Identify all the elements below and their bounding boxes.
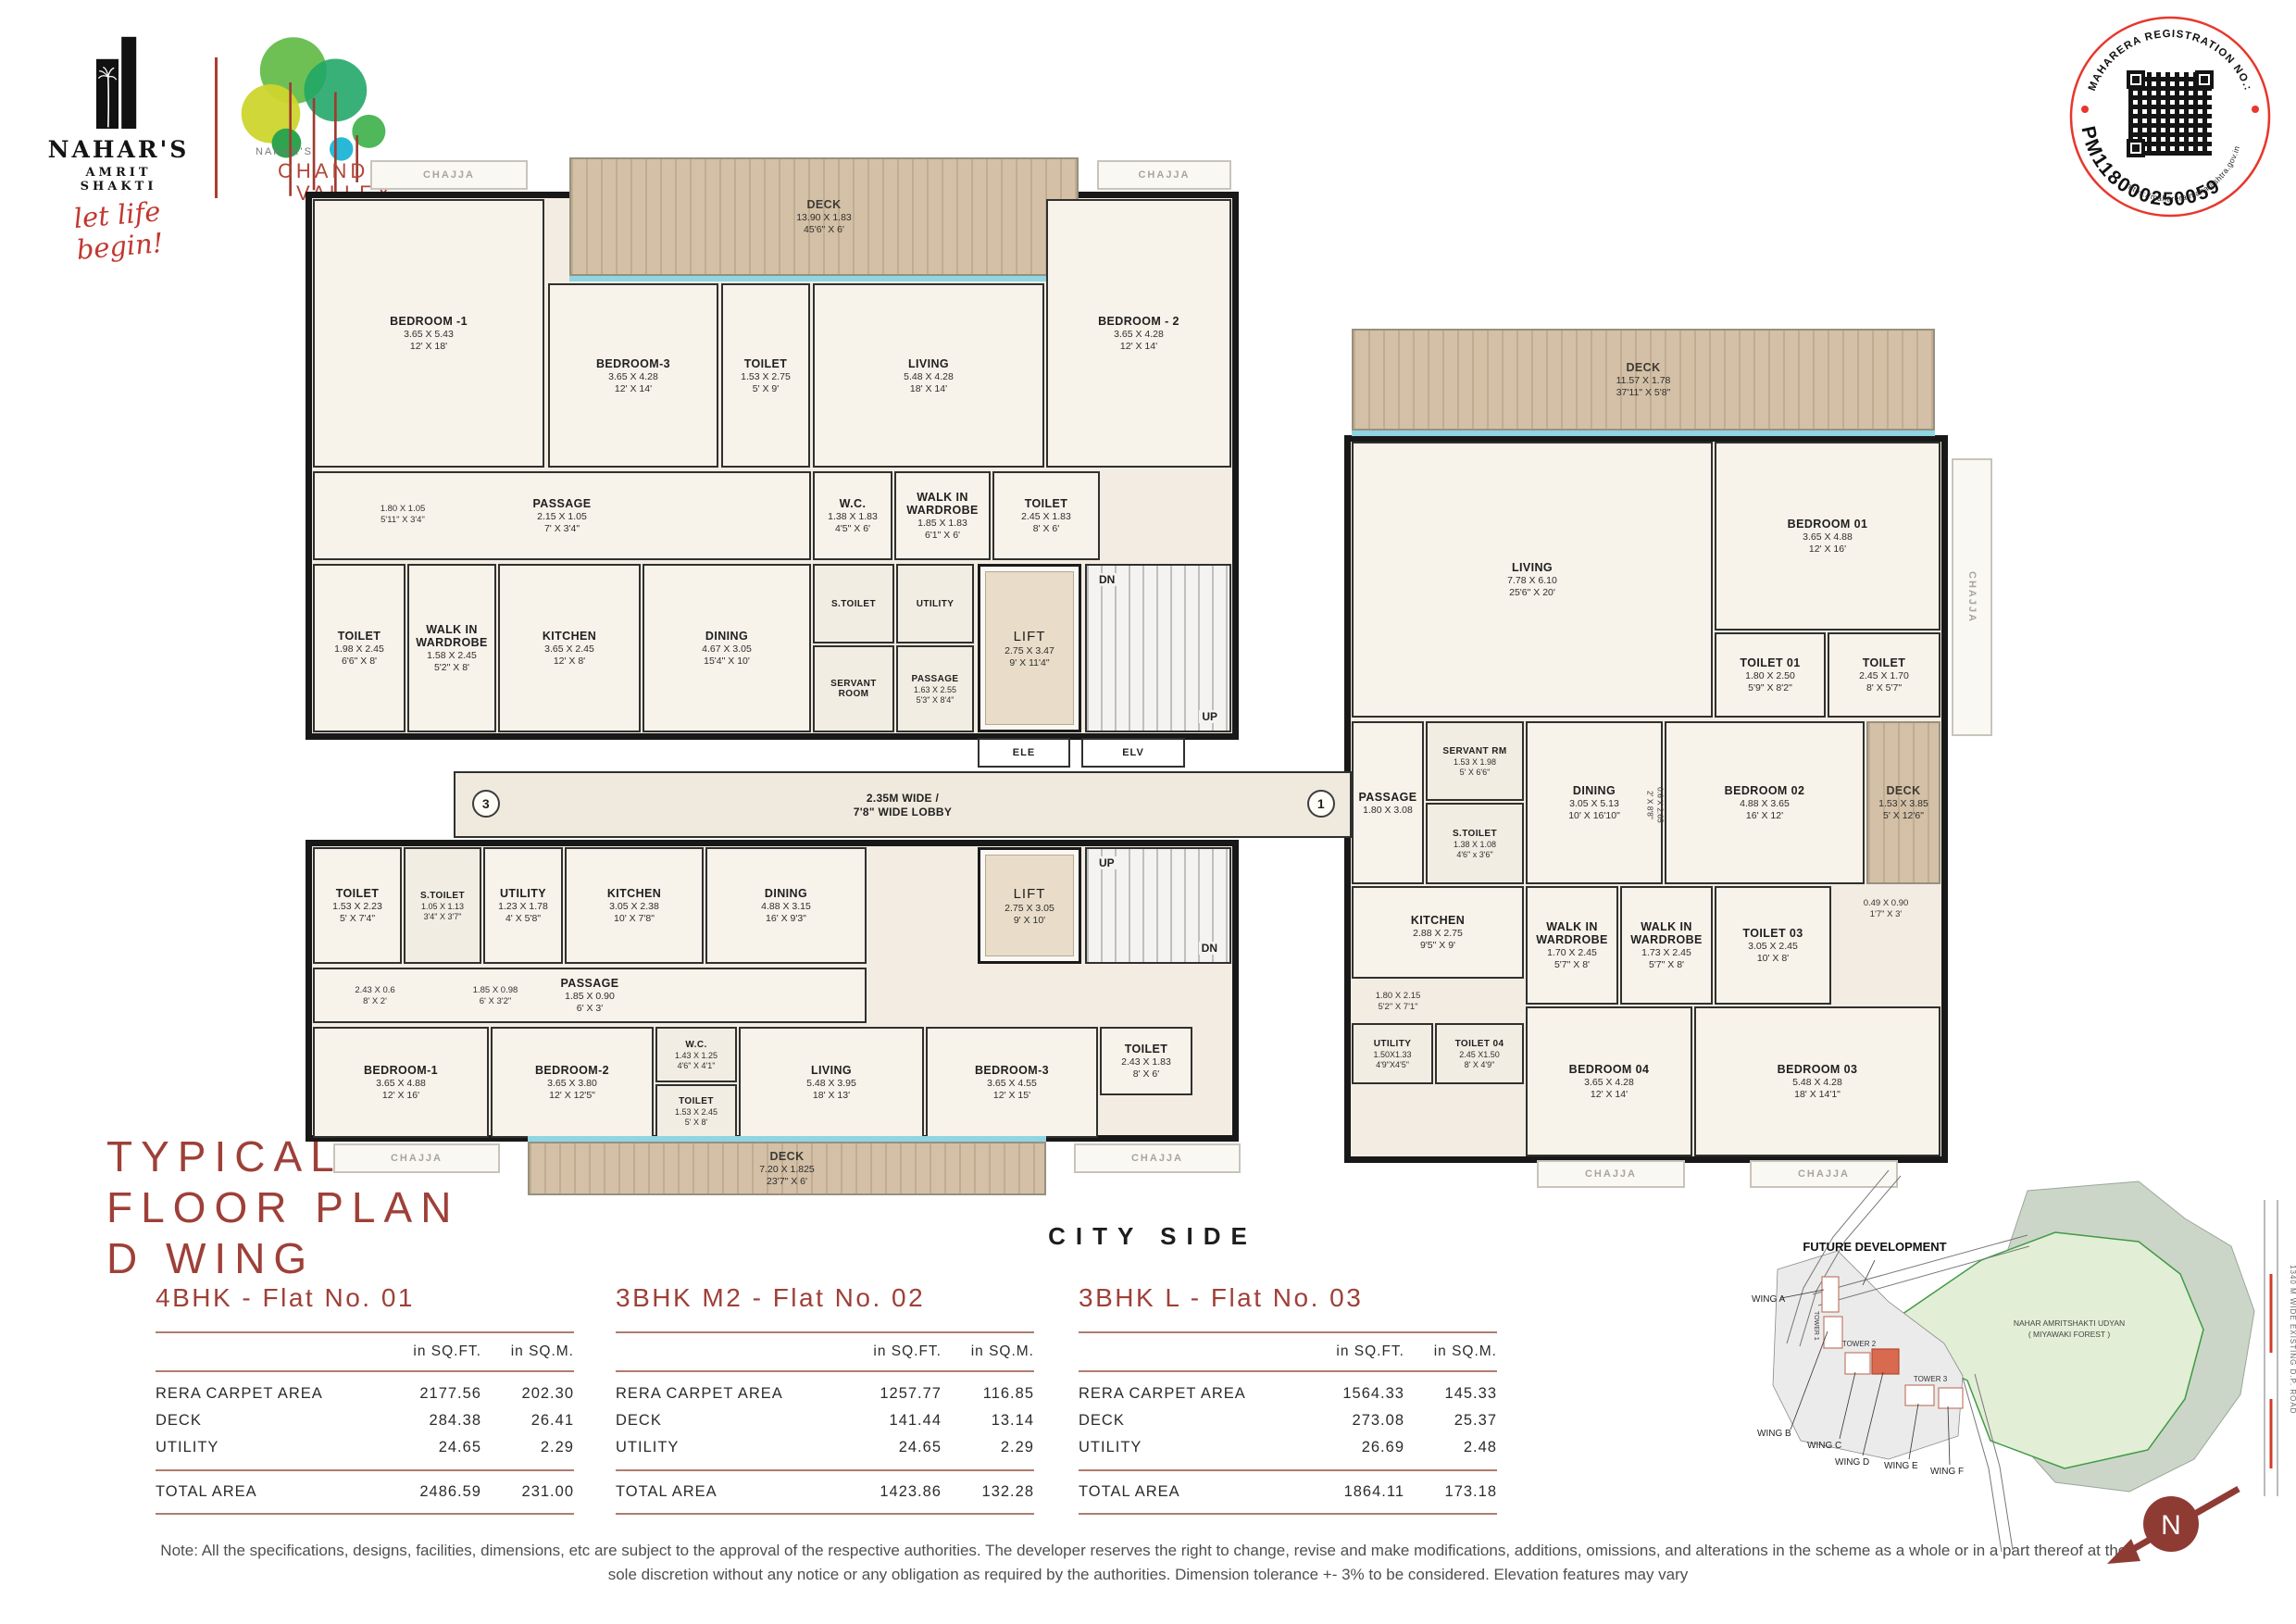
col-sqm: in SQ.M. <box>1404 1343 1497 1360</box>
room-dimension: 12' X 12'5" <box>549 1090 595 1101</box>
room-name: KITCHEN <box>543 630 596 643</box>
row-label: DECK <box>616 1412 832 1430</box>
room-dimension: 2.75 X 3.05 <box>1004 903 1054 914</box>
col-sqm: in SQ.M. <box>942 1343 1034 1360</box>
room-dimension: 8' X 4'9" <box>1465 1060 1495 1069</box>
row-value: 1257.77 <box>832 1385 942 1403</box>
room-name: BEDROOM-2 <box>535 1064 609 1077</box>
flat3-bedroom-01: BEDROOM 013.65 X 4.8812' X 16' <box>1715 442 1940 631</box>
area-table-flat-02: 3BHK M2 - Flat No. 02 in SQ.FT. in SQ.M.… <box>616 1283 1034 1515</box>
title-line-1: TYPICAL <box>106 1131 459 1182</box>
flat3-s-toilet: S.TOILET1.38 X 1.084'6" x 3'6" <box>1426 803 1524 884</box>
room-dimension: 10' X 7'8" <box>614 913 655 924</box>
flat2-s-toilet: S.TOILET1.05 X 1.133'4" X 3'7" <box>404 847 481 964</box>
room-dimension: 9'5" X 9' <box>1420 940 1455 951</box>
room-dimension: 12' X 14' <box>1591 1089 1628 1100</box>
room-dimension: 7.20 X 1.825 <box>759 1164 815 1175</box>
room-dimension: 2.15 X 1.05 <box>537 511 587 522</box>
table-header: in SQ.FT. in SQ.M. <box>156 1331 574 1372</box>
table-row: UTILITY26.692.48 <box>1079 1434 1497 1461</box>
room-dimension: 3.05 X 5.13 <box>1569 798 1619 809</box>
room-name: SERVANT ROOM <box>815 679 892 699</box>
room-dimension: 7'8" WIDE LOBBY <box>854 806 952 818</box>
row-value: 132.28 <box>942 1483 1034 1501</box>
room-name: S.TOILET <box>1453 829 1497 839</box>
room-dimension: 1.58 X 2.45 <box>427 650 477 661</box>
room-dimension: 5'2" X 7'1" <box>1378 1002 1417 1012</box>
row-label: TOTAL AREA <box>156 1483 372 1501</box>
room-dimension: 5.48 X 4.28 <box>1792 1077 1842 1088</box>
row-value: 231.00 <box>481 1483 574 1501</box>
room-name: LIVING <box>811 1064 852 1077</box>
room-dimension: 6' X 3' <box>577 1003 604 1014</box>
room-dimension: 1.53 X 2.23 <box>332 901 382 912</box>
room-dimension: 5'9" X 8'2" <box>1748 682 1792 693</box>
room-name: TOILET <box>1125 1043 1168 1056</box>
room-dimension: 18' X 14'1" <box>1794 1089 1841 1100</box>
entry-number-1: 1 <box>1307 790 1335 818</box>
room-name: PASSAGE <box>561 977 619 990</box>
room-name: BEDROOM - 2 <box>1098 315 1179 328</box>
room-name: BEDROOM 03 <box>1778 1063 1858 1076</box>
room-dimension: 3.65 X 4.28 <box>1114 329 1164 340</box>
room-dimension: 2.45 X 1.70 <box>1859 670 1909 681</box>
room-dimension: 18' X 14' <box>910 383 947 394</box>
room-dimension: 2.75 X 3.47 <box>1004 645 1054 656</box>
room-name: PASSAGE <box>912 674 959 684</box>
flat3-deck-top: DECK11.57 X 1.7837'11" X 5'8" <box>1352 329 1935 431</box>
wing-c-label: WING C <box>1807 1441 1841 1451</box>
flat3-living: LIVING7.78 X 6.1025'6" X 20' <box>1352 442 1713 718</box>
room-dimension: 5'11" X 3'4" <box>381 515 425 525</box>
room-dimension: 13.90 X 1.83 <box>796 212 852 223</box>
chajja-bottom-right-a: CHAJJA <box>1537 1160 1685 1188</box>
row-value: 26.41 <box>481 1412 574 1430</box>
room-dimension: 12' X 8' <box>554 656 585 667</box>
row-value: 26.69 <box>1295 1439 1404 1456</box>
room-name: TOILET <box>744 357 788 370</box>
room-name: BEDROOM-1 <box>364 1064 438 1077</box>
flat3-servant-room: SERVANT RM1.53 X 1.985' X 6'6" <box>1426 721 1524 801</box>
room-dimension: 3.65 X 4.88 <box>376 1078 426 1089</box>
room-name: W.C. <box>685 1040 706 1050</box>
page-title: TYPICAL FLOOR PLAN D WING <box>106 1131 459 1285</box>
room-dimension: 16' X 9'3" <box>766 913 806 924</box>
room-dimension: 23'7" X 6' <box>767 1176 807 1187</box>
room-name: CHAJJA <box>1585 1168 1637 1180</box>
room-dimension: 2' X 8'8" <box>1646 791 1655 819</box>
flat2-kitchen: KITCHEN3.05 X 2.3810' X 7'8" <box>565 847 704 964</box>
room-dimension: 1.23 X 1.78 <box>498 901 548 912</box>
row-label: UTILITY <box>616 1439 832 1456</box>
table-row: UTILITY24.652.29 <box>616 1434 1034 1461</box>
chajja-bottom-mid: CHAJJA <box>1074 1143 1241 1173</box>
row-value: 2.48 <box>1404 1439 1497 1456</box>
tower-1-label: TOWER 1 <box>1813 1311 1819 1341</box>
room-name: CHAJJA <box>1131 1153 1183 1164</box>
room-name: DINING <box>705 630 748 643</box>
room-dimension: 4.88 X 3.15 <box>761 901 811 912</box>
col-sqft: in SQ.FT. <box>832 1343 942 1360</box>
flat1-toilet-b: TOILET2.45 X 1.838' X 6' <box>992 471 1100 560</box>
room-dimension: 3.65 X 4.88 <box>1803 531 1853 543</box>
room-dimension: 2.45 X 1.83 <box>1021 511 1071 522</box>
flat1-wardrobe-b: WALK IN WARDROBE1.58 X 2.455'2" X 8' <box>407 564 496 732</box>
amrit-shakti-name: NAHAR'S <box>44 136 193 163</box>
flat2-bedroom-1: BEDROOM-13.65 X 4.8812' X 16' <box>313 1027 489 1138</box>
compass-n: N <box>2161 1510 2181 1541</box>
flat3-wardrobe-dim: 0.6 X 2.652' X 8'8" <box>1646 740 1665 869</box>
future-development-label: FUTURE DEVELOPMENT <box>1803 1240 1946 1254</box>
staircase-2: UPDN <box>1085 847 1231 964</box>
total-row: TOTAL AREA1864.11173.18 <box>1079 1471 1497 1515</box>
row-label: DECK <box>1079 1412 1295 1430</box>
qr-finder-icon <box>2127 70 2145 89</box>
room-dimension: 1.98 X 2.45 <box>334 643 384 655</box>
room-name: WALK IN WARDROBE <box>896 491 989 517</box>
row-value: 2177.56 <box>372 1385 481 1403</box>
room-dimension: 15'4" X 10' <box>704 656 750 667</box>
room-dimension: 1.53 X 1.98 <box>1454 757 1496 767</box>
col-sqft: in SQ.FT. <box>1295 1343 1404 1360</box>
room-dimension: 6'1" X 6' <box>925 530 960 541</box>
area-table-flat-03: 3BHK L - Flat No. 03 in SQ.FT. in SQ.M. … <box>1079 1283 1497 1515</box>
chajja-right-vertical: CHAJJA <box>1952 458 1992 736</box>
forest-name-2: ( MIYAWAKI FOREST ) <box>2028 1330 2110 1339</box>
wing-d-highlight <box>1872 1349 1899 1374</box>
room-dimension: 5' X 6'6" <box>1460 768 1491 777</box>
room-name: LIFT <box>1014 886 1046 902</box>
wing-a-label: WING A <box>1752 1294 1785 1305</box>
title-line-3: D WING <box>106 1233 459 1284</box>
row-label: UTILITY <box>1079 1439 1295 1456</box>
room-dimension: 5.48 X 4.28 <box>904 371 954 382</box>
room-dimension: 5' X 7'4" <box>340 913 375 924</box>
room-dimension: 4'5" X 6' <box>835 523 870 534</box>
room-name: LIVING <box>908 357 949 370</box>
room-dimension: 8' X 5'7" <box>1866 682 1902 693</box>
room-dimension: 3.05 X 2.45 <box>1748 941 1798 952</box>
room-dimension: 8' X 2' <box>363 996 387 1006</box>
flat3-kitchen-dim: 1.80 X 2.155'2" X 7'1" <box>1352 981 1444 1021</box>
flat-heading: 4BHK - Flat No. 01 <box>156 1283 574 1313</box>
flat3-bedroom-04: BEDROOM 043.65 X 4.2812' X 14' <box>1526 1006 1692 1156</box>
row-value: 2.29 <box>481 1439 574 1456</box>
room-name: CHAJJA <box>1138 169 1190 181</box>
tower-2-label: TOWER 2 <box>1842 1340 1877 1348</box>
row-label: RERA CARPET AREA <box>1079 1385 1295 1403</box>
table-row: DECK273.0825.37 <box>1079 1407 1497 1434</box>
window-strip-flat3 <box>1352 431 1935 436</box>
room-dimension: 12' X 14' <box>615 383 652 394</box>
row-value: 25.37 <box>1404 1412 1497 1430</box>
room-name: PASSAGE <box>533 497 592 510</box>
room-dimension: 4.67 X 3.05 <box>702 643 752 655</box>
flat1-kitchen: KITCHEN3.65 X 2.4512' X 8' <box>498 564 641 732</box>
room-name: CHAJJA <box>423 169 475 181</box>
col-sqm: in SQ.M. <box>481 1343 574 1360</box>
room-dimension: 1.85 X 0.90 <box>565 991 615 1002</box>
room-dimension: 5'7" X 8' <box>1649 959 1684 970</box>
total-row: TOTAL AREA1423.86132.28 <box>616 1471 1034 1515</box>
row-value: 141.44 <box>832 1412 942 1430</box>
room-name: BEDROOM-3 <box>596 357 670 370</box>
room-name: ELV <box>1122 747 1144 758</box>
room-name: WALK IN WARDROBE <box>1622 920 1711 946</box>
total-row: TOTAL AREA2486.59231.00 <box>156 1471 574 1515</box>
flat2-deck: DECK7.20 X 1.82523'7" X 6' <box>528 1142 1046 1195</box>
room-dimension: 8' X 6' <box>1133 1068 1160 1080</box>
row-value: 273.08 <box>1295 1412 1404 1430</box>
flat3-bedroom-02: BEDROOM 024.88 X 3.6516' X 12' <box>1665 721 1865 884</box>
room-name: DECK <box>806 198 841 211</box>
nahars-amrit-shakti-logo: NAHAR'S AMRIT SHAKTI let life begin! <box>44 31 193 262</box>
room-name: UTILITY <box>917 599 955 609</box>
lift-2: LIFT2.75 X 3.059' X 10' <box>978 847 1081 964</box>
chajja-top-left: CHAJJA <box>370 160 528 190</box>
flat3-deck-side: DECK1.53 X 3.855' X 12'6" <box>1866 721 1940 884</box>
room-dimension: 16' X 12' <box>1746 810 1783 821</box>
room-dimension: 12' X 16' <box>1809 543 1846 555</box>
table-header: in SQ.FT. in SQ.M. <box>1079 1331 1497 1372</box>
row-label: TOTAL AREA <box>1079 1483 1295 1501</box>
qr-finder-icon <box>2195 70 2214 89</box>
lift-1: LIFT2.75 X 3.479' X 11'4" <box>978 564 1081 732</box>
wing-f-label: WING F <box>1930 1467 1964 1477</box>
row-label: UTILITY <box>156 1439 372 1456</box>
flat2-wardrobe-dim-a: 2.43 X 0.68' X 2' <box>324 971 426 1019</box>
flat2-wc: W.C.1.43 X 1.254'6" X 4'1" <box>655 1027 737 1082</box>
flat1-passage-dim: 1.80 X 1.055'11" X 3'4" <box>333 486 472 542</box>
room-name: PASSAGE <box>1359 791 1417 804</box>
flat2-toilet-a: TOILET1.53 X 2.235' X 7'4" <box>313 847 402 964</box>
chandi-valley-pre: NAHAR'S <box>256 146 313 157</box>
room-dimension: 0.49 X 0.90 <box>1864 898 1909 908</box>
building-icon <box>74 31 163 130</box>
room-name: TOILET <box>336 887 380 900</box>
flat3-utility: UTILITY1.50X1.334'9"X4'5" <box>1352 1023 1433 1084</box>
chajja-top-right: CHAJJA <box>1097 160 1231 190</box>
room-dimension: 1.38 X 1.08 <box>1454 840 1496 849</box>
room-name: KITCHEN <box>607 887 661 900</box>
room-dimension: 25'6" X 20' <box>1509 587 1555 598</box>
flat3-wardrobe-a: WALK IN WARDROBE1.70 X 2.455'7" X 8' <box>1526 886 1618 1005</box>
room-name: 2.35M WIDE / <box>867 792 939 805</box>
room-dimension: 11.57 X 1.78 <box>1616 375 1671 386</box>
room-name: BEDROOM 02 <box>1725 784 1805 797</box>
row-value: 145.33 <box>1404 1385 1497 1403</box>
forest-name-1: NAHAR AMRITSHAKTI UDYAN <box>2014 1318 2125 1328</box>
flat3-toilet-01: TOILET 011.80 X 2.505'9" X 8'2" <box>1715 632 1826 718</box>
flat3-toilet-04: TOILET 042.45 X1.508' X 4'9" <box>1435 1023 1524 1084</box>
room-name: TOILET 04 <box>1455 1039 1504 1049</box>
stair-direction-label: DN <box>1199 942 1220 955</box>
room-dimension: 4' X 5'8" <box>505 913 541 924</box>
flat2-toilet-c: TOILET2.43 X 1.838' X 6' <box>1100 1027 1192 1095</box>
flat1-wardrobe-a: WALK IN WARDROBE1.85 X 1.836'1" X 6' <box>894 471 991 560</box>
room-dimension: 1.73 X 2.45 <box>1641 947 1691 958</box>
room-name: S.TOILET <box>420 891 465 901</box>
room-dimension: 3.65 X 4.55 <box>987 1078 1037 1089</box>
room-dimension: 1.85 X 0.98 <box>473 985 518 995</box>
flat3-wardrobe-b: WALK IN WARDROBE1.73 X 2.455'7" X 8' <box>1620 886 1713 1005</box>
flat2-bedroom-2: BEDROOM-23.65 X 3.8012' X 12'5" <box>491 1027 654 1138</box>
room-dimension: 1.80 X 2.50 <box>1745 670 1795 681</box>
room-dimension: 5'7" X 8' <box>1554 959 1590 970</box>
table-row: DECK284.3826.41 <box>156 1407 574 1434</box>
elv-box: ELV <box>1081 738 1185 768</box>
row-label: TOTAL AREA <box>616 1483 832 1501</box>
flat3-toilet-a: TOILET2.45 X 1.708' X 5'7" <box>1828 632 1940 718</box>
row-value: 1564.33 <box>1295 1385 1404 1403</box>
room-name: UTILITY <box>1374 1039 1412 1049</box>
room-dimension: 1'7" X 3' <box>1870 909 1902 919</box>
room-name: KITCHEN <box>1411 914 1465 927</box>
flat3-kitchen: KITCHEN2.88 X 2.759'5" X 9' <box>1352 886 1524 979</box>
room-name: 3 <box>482 796 490 811</box>
entry-number-3: 3 <box>472 790 500 818</box>
flat1-toilet-a: TOILET1.53 X 2.755' X 9' <box>721 283 810 468</box>
room-name: DECK <box>769 1150 804 1163</box>
row-value: 173.18 <box>1404 1483 1497 1501</box>
maharera-qr-badge: MAHARERA REGISTRATION NO.: PM11800025005… <box>2066 13 2274 220</box>
room-dimension: 12' X 16' <box>382 1090 419 1101</box>
row-label: DECK <box>156 1412 372 1430</box>
flat1-toilet-c: TOILET1.98 X 2.456'6" X 8' <box>313 564 406 732</box>
flat3-niche-dim: 0.49 X 0.901'7" X 3' <box>1835 890 1937 927</box>
title-line-2: FLOOR PLAN <box>106 1182 459 1233</box>
room-dimension: 2.88 X 2.75 <box>1413 928 1463 939</box>
flat2-toilet-b: TOILET1.53 X 2.455' X 8' <box>655 1084 737 1138</box>
room-dimension: 9' X 11'4" <box>1009 657 1049 668</box>
tagline: let life begin! <box>42 193 194 269</box>
table-row: RERA CARPET AREA1257.77116.85 <box>616 1380 1034 1407</box>
room-dimension: 4'6" x 3'6" <box>1456 850 1492 859</box>
row-value: 2.29 <box>942 1439 1034 1456</box>
flat3-toilet-03: TOILET 033.05 X 2.4510' X 8' <box>1715 886 1831 1005</box>
room-name: DINING <box>765 887 807 900</box>
room-dimension: 3.65 X 5.43 <box>404 329 454 340</box>
wing-b-label: WING B <box>1757 1429 1791 1439</box>
room-name: TOILET <box>1025 497 1068 510</box>
area-table-flat-01: 4BHK - Flat No. 01 in SQ.FT. in SQ.M. RE… <box>156 1283 574 1515</box>
room-dimension: 0.6 X 2.65 <box>1656 787 1666 823</box>
room-name: DECK <box>1886 784 1920 797</box>
room-dimension: 10' X 16'10" <box>1568 810 1620 821</box>
window-strip-flat1 <box>569 276 1079 281</box>
room-name: BEDROOM -1 <box>390 315 468 328</box>
room-name: DINING <box>1573 784 1616 797</box>
room-dimension: 1.80 X 2.15 <box>1376 991 1421 1001</box>
room-dimension: 2.45 X1.50 <box>1459 1050 1500 1059</box>
row-value: 116.85 <box>942 1385 1034 1403</box>
room-dimension: 18' X 13' <box>813 1090 850 1101</box>
flat1-wc: W.C.1.38 X 1.834'5" X 6' <box>813 471 892 560</box>
room-dimension: 12' X 15' <box>993 1090 1030 1101</box>
floor-plan: DECK13.90 X 1.8345'6" X 6'CHAJJACHAJJABE… <box>306 153 2014 1199</box>
row-value: 24.65 <box>832 1439 942 1456</box>
room-dimension: 5' X 8' <box>685 1118 707 1127</box>
room-dimension: 1.80 X 3.08 <box>1363 805 1413 816</box>
room-name: TOILET <box>1863 656 1906 669</box>
room-dimension: 37'11" X 5'8" <box>1616 387 1671 398</box>
room-dimension: 6' X 3'2" <box>480 996 511 1006</box>
room-dimension: 4'6" X 4'1" <box>678 1061 716 1070</box>
lobby: 2.35M WIDE /7'8" WIDE LOBBY <box>454 771 1352 838</box>
flat1-passage-b: PASSAGE1.63 X 2.555'3" X 8'4" <box>896 645 974 732</box>
room-dimension: 1.05 X 1.13 <box>421 902 464 911</box>
flat1-bedroom-1: BEDROOM -13.65 X 5.4312' X 18' <box>313 199 544 468</box>
row-value: 1423.86 <box>832 1483 942 1501</box>
room-name: UTILITY <box>500 887 546 900</box>
location-map: FUTURE DEVELOPMENT NAHAR AMRITSHAKTI UDY… <box>1750 1163 2296 1589</box>
flat3-dining: DINING3.05 X 5.1310' X 16'10" <box>1526 721 1663 884</box>
row-value: 24.65 <box>372 1439 481 1456</box>
logo-divider <box>215 57 218 198</box>
room-dimension: 1.85 X 1.83 <box>917 518 967 529</box>
flat1-dining: DINING4.67 X 3.0515'4" X 10' <box>643 564 811 732</box>
room-name: BEDROOM-3 <box>975 1064 1049 1077</box>
room-dimension: 1.43 X 1.25 <box>675 1051 717 1060</box>
room-dimension: 2.43 X 1.83 <box>1121 1056 1171 1068</box>
row-value: 2486.59 <box>372 1483 481 1501</box>
room-dimension: 1.70 X 2.45 <box>1547 947 1597 958</box>
room-dimension: 1.80 X 1.05 <box>381 504 426 514</box>
room-dimension: 3.65 X 3.80 <box>547 1078 597 1089</box>
table-row: DECK141.4413.14 <box>616 1407 1034 1434</box>
row-value: 284.38 <box>372 1412 481 1430</box>
flat-heading: 3BHK M2 - Flat No. 02 <box>616 1283 1034 1313</box>
room-name: LIFT <box>1014 629 1046 644</box>
flat1-living: LIVING5.48 X 4.2818' X 14' <box>813 283 1044 468</box>
flat-heading: 3BHK L - Flat No. 03 <box>1079 1283 1497 1313</box>
staircase-1: DNUP <box>1085 564 1231 732</box>
row-label: RERA CARPET AREA <box>156 1385 372 1403</box>
flat2-living: LIVING5.48 X 3.9518' X 13' <box>739 1027 924 1138</box>
deck: DECK13.90 X 1.8345'6" X 6' <box>569 157 1079 276</box>
room-name: DECK <box>1626 361 1660 374</box>
flat2-utility: UTILITY1.23 X 1.784' X 5'8" <box>483 847 563 964</box>
room-name: S.TOILET <box>831 599 876 609</box>
compass-icon: N <box>2107 1489 2239 1564</box>
room-dimension: 5'3" X 8'4" <box>917 695 955 705</box>
row-value: 1864.11 <box>1295 1483 1404 1501</box>
tower-3-label: TOWER 3 <box>1914 1375 1948 1383</box>
room-dimension: 3'4" X 3'7" <box>424 912 462 921</box>
room-dimension: 9' X 10' <box>1014 915 1045 926</box>
city-side-label: CITY SIDE <box>893 1222 1412 1251</box>
flat3-bedroom-03: BEDROOM 035.48 X 4.2818' X 14'1" <box>1694 1006 1940 1156</box>
room-name: TOILET <box>679 1096 714 1106</box>
qr-code <box>2128 72 2212 156</box>
col-sqft: in SQ.FT. <box>372 1343 481 1360</box>
room-dimension: 1.38 X 1.83 <box>828 511 878 522</box>
flat1-servant-room: SERVANT ROOM <box>813 645 894 732</box>
flat1-s-toilet: S.TOILET <box>813 564 894 643</box>
room-name: TOILET 03 <box>1742 927 1803 940</box>
room-dimension: 5'2" X 8' <box>434 662 469 673</box>
room-name: 1 <box>1317 796 1325 811</box>
room-dimension: 4'9"X4'5" <box>1376 1060 1409 1069</box>
room-name: WALK IN WARDROBE <box>409 623 494 649</box>
room-name: SERVANT RM <box>1442 746 1506 756</box>
room-dimension: 4.88 X 3.65 <box>1740 798 1790 809</box>
room-dimension: 1.50X1.33 <box>1373 1050 1411 1059</box>
room-dimension: 5' X 12'6" <box>1883 810 1924 821</box>
room-dimension: 10' X 8' <box>1757 953 1789 964</box>
room-dimension: 2.43 X 0.6 <box>355 985 394 995</box>
stair-direction-label: DN <box>1096 573 1117 586</box>
